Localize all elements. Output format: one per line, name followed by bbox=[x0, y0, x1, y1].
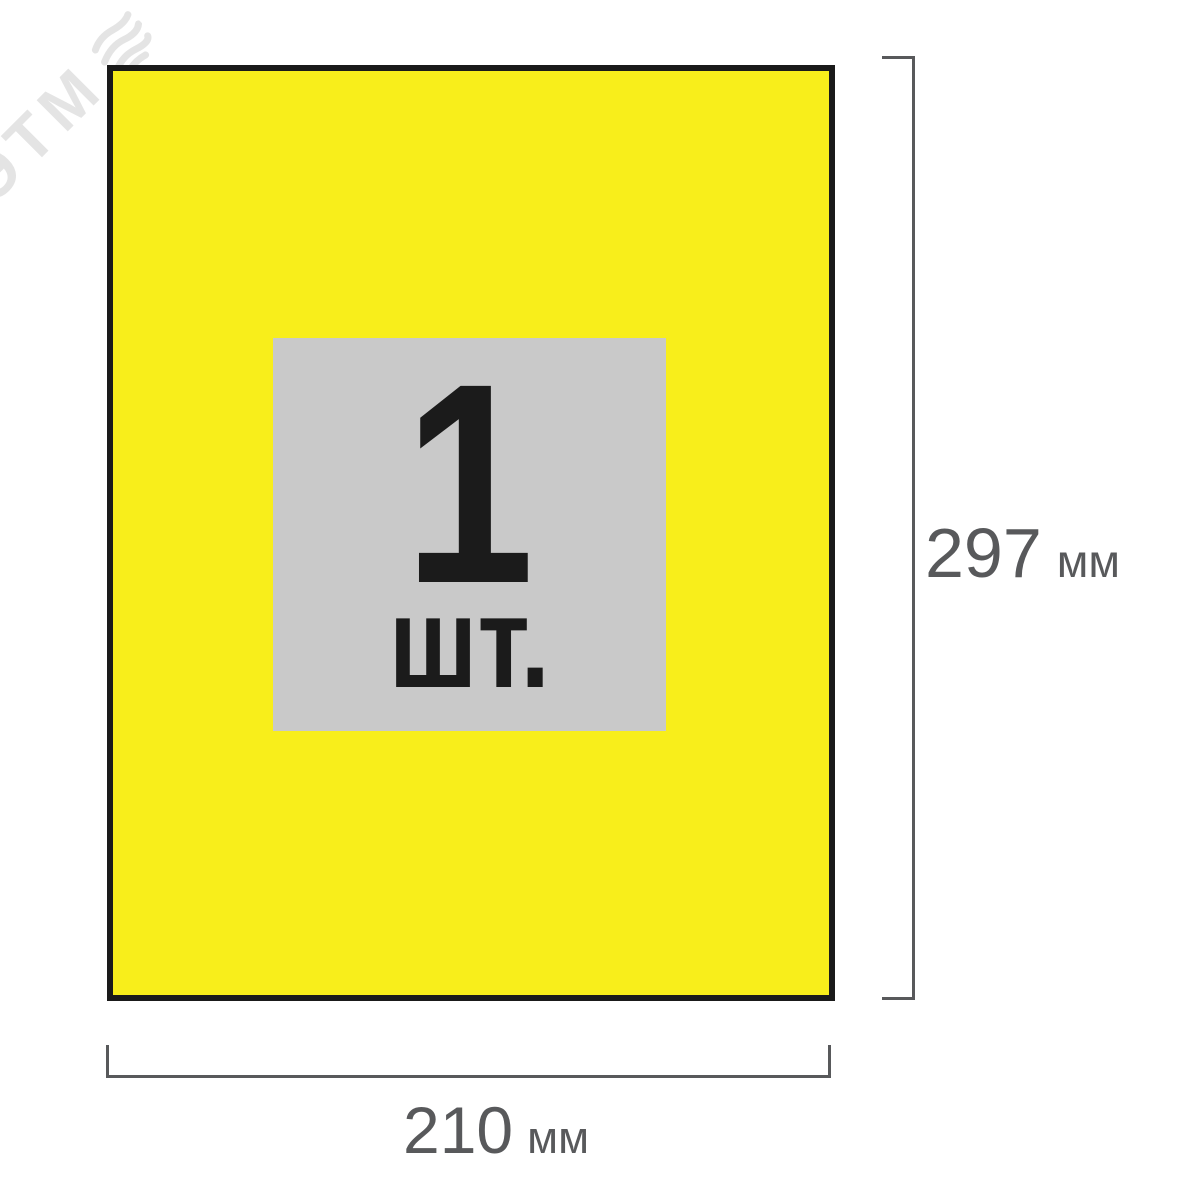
width-dimension-tick-left bbox=[106, 1045, 109, 1078]
height-dimension-label: 297 мм bbox=[925, 518, 1120, 588]
height-unit: мм bbox=[1057, 538, 1120, 584]
height-dimension-line bbox=[912, 56, 915, 1000]
watermark-text: ЭТМ bbox=[0, 53, 115, 213]
width-unit: мм bbox=[527, 1115, 589, 1160]
height-value: 297 bbox=[925, 518, 1042, 588]
width-dimension-line bbox=[106, 1075, 831, 1078]
height-dimension-tick-bottom bbox=[882, 997, 915, 1000]
count-unit: шт. bbox=[273, 577, 666, 707]
width-value: 210 bbox=[403, 1097, 513, 1163]
product-diagram: ЭТМ 1 шт. 297 мм 210 мм bbox=[0, 0, 1200, 1200]
width-dimension-label: 210 мм bbox=[296, 1097, 696, 1163]
height-dimension-tick-top bbox=[882, 56, 915, 59]
width-dimension-tick-right bbox=[828, 1045, 831, 1078]
